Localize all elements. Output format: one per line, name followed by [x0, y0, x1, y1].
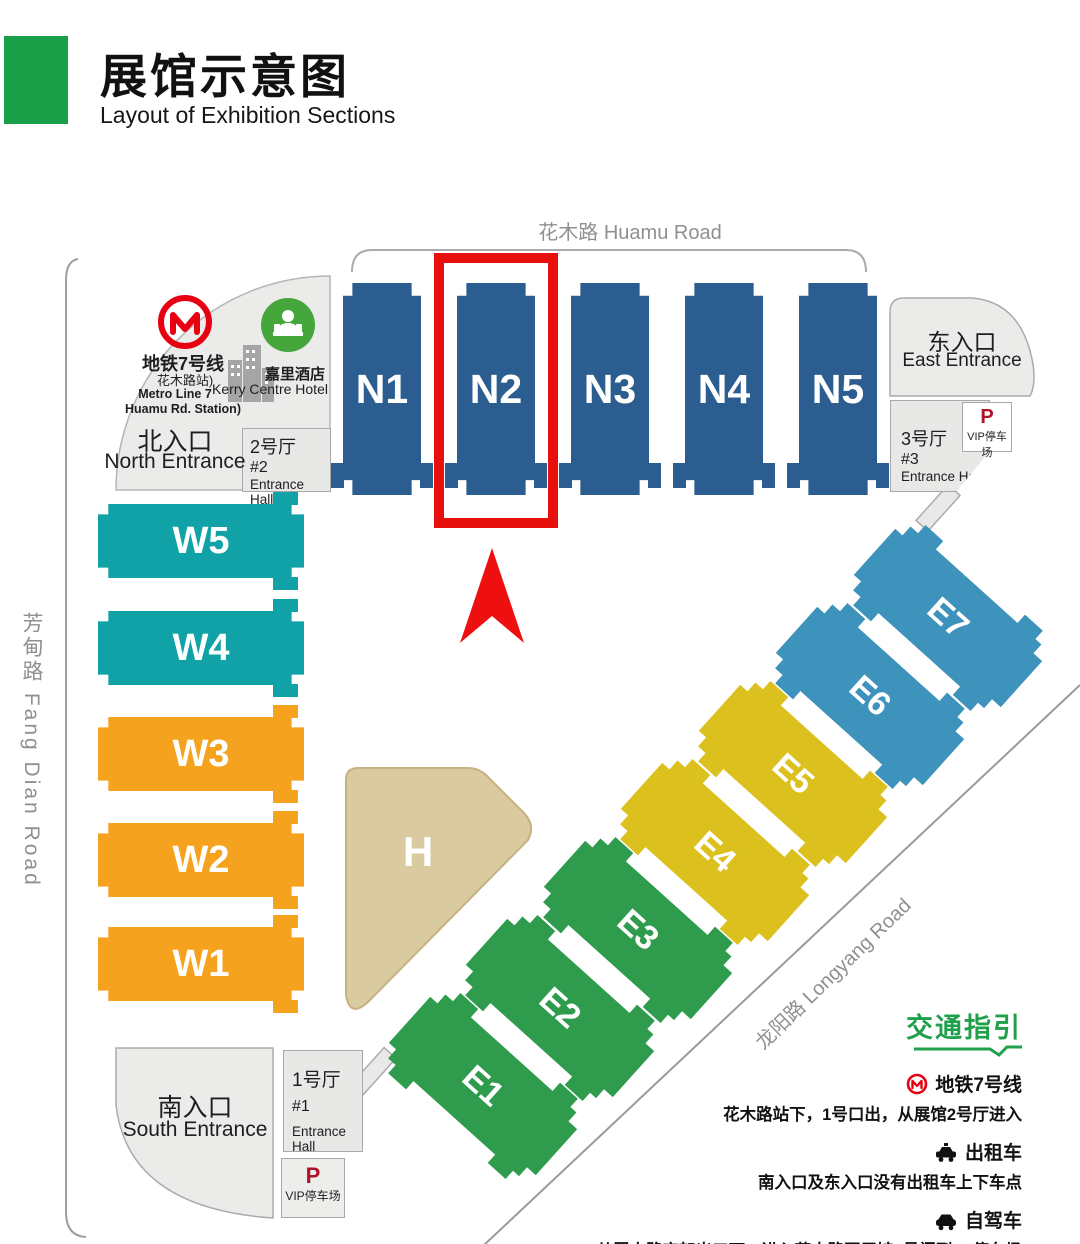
guide-row-car: 自驾车 — [592, 1206, 1022, 1233]
hall-connector — [787, 463, 800, 488]
car-icon — [934, 1209, 958, 1231]
hall-connector — [420, 463, 433, 488]
hall-label: W2 — [173, 839, 230, 882]
traffic-guide: 交通指引 地铁7号线 花木路站下，1号口出，从展馆2号厅进入 出租车 南入口及东… — [592, 1006, 1022, 1244]
hall-n4: N4 — [685, 283, 763, 495]
hall-label: E1 — [454, 1058, 511, 1115]
hotel-icon — [261, 298, 315, 352]
hall-connector — [876, 463, 889, 488]
vip-parking-label: VIP停车场 — [963, 428, 1011, 460]
hall2-en: Entrance Hall — [250, 477, 330, 507]
hall-label: E6 — [841, 668, 898, 725]
guide-row-metro: 地铁7号线 — [592, 1070, 1022, 1097]
n2-highlight-rectangle — [434, 253, 558, 528]
hall-label: W4 — [173, 627, 230, 670]
south-entrance-en-label: South Entrance — [110, 1118, 280, 1142]
hall1-en: Entrance Hall — [292, 1124, 362, 1154]
guide-car-desc: 从罗山路高架出口下，进入花木路至展馆7号门到P1停车场 — [592, 1237, 1022, 1244]
guide-title: 交通指引 — [906, 1006, 1022, 1045]
hall-label: N3 — [584, 366, 636, 413]
hall-label: E5 — [764, 746, 821, 803]
hall-label: N4 — [698, 366, 750, 413]
hall-w2: W2 — [98, 823, 304, 897]
exhibition-map: 展馆示意图 Layout of Exhibition Sections — [0, 0, 1080, 1244]
hall-w4: W4 — [98, 611, 304, 685]
hall-connector — [273, 577, 298, 590]
hotel-en-label: Kerry Centre Hotel — [200, 381, 340, 397]
map-frame-line — [66, 259, 86, 1237]
location-arrow — [460, 548, 524, 643]
hall-w1: W1 — [98, 927, 304, 1001]
hall-w5: W5 — [98, 504, 304, 578]
hall-w3: W3 — [98, 717, 304, 791]
guide-underline — [914, 1045, 1022, 1057]
east-entrance-en-label: East Entrance — [890, 350, 1034, 372]
east-vip-parking-box: P VIP停车场 — [962, 402, 1012, 452]
hall-connector — [331, 463, 344, 488]
north-entrance-en-label: North Entrance — [85, 450, 265, 474]
guide-taxi-label: 出租车 — [965, 1138, 1022, 1165]
guide-metro-desc: 花木路站下，1号口出，从展馆2号厅进入 — [592, 1101, 1022, 1125]
hall-connector — [762, 463, 775, 488]
hall-connector — [273, 790, 298, 803]
hall-label: E4 — [686, 824, 743, 881]
hall-label: W3 — [173, 733, 230, 776]
taxi-icon — [934, 1141, 958, 1163]
entrance-hall-1-box: 1号厅 #1 Entrance Hall — [283, 1050, 363, 1152]
hall-connector — [273, 684, 298, 697]
hall-connector — [273, 896, 298, 909]
hall1-num: #1 — [292, 1098, 362, 1116]
hall-h-label: H — [378, 828, 458, 876]
metro-icon — [906, 1073, 928, 1095]
guide-metro-label: 地铁7号线 — [935, 1070, 1022, 1097]
parking-icon: P — [282, 1165, 344, 1187]
guide-car-label: 自驾车 — [965, 1206, 1022, 1233]
hall-connector — [273, 1000, 298, 1013]
hall-label: W5 — [173, 520, 230, 563]
hall-label: N1 — [356, 366, 408, 413]
hall-connector — [273, 811, 298, 824]
hall-n1: N1 — [343, 283, 421, 495]
hall-label: N5 — [812, 366, 864, 413]
hall-connector — [559, 463, 572, 488]
hall-label: E3 — [609, 902, 666, 959]
hall-label: W1 — [173, 943, 230, 986]
north-boundary-line — [352, 250, 866, 272]
hall-n3: N3 — [571, 283, 649, 495]
vip-parking-label: VIP停车场 — [282, 1187, 344, 1204]
hall-connector — [273, 599, 298, 612]
hall-connector — [648, 463, 661, 488]
hall-connector — [273, 705, 298, 718]
hall-connector — [273, 915, 298, 928]
hall-n5: N5 — [799, 283, 877, 495]
parking-icon: P — [963, 406, 1011, 428]
huamu-road-label: 花木路 Huamu Road — [535, 216, 725, 245]
guide-row-taxi: 出租车 — [592, 1138, 1022, 1165]
south-vip-parking-box: P VIP停车场 — [281, 1158, 345, 1218]
hall-label: E7 — [919, 590, 976, 647]
hall-connector — [673, 463, 686, 488]
fangdian-road-label: 芳甸路 Fang Dian Road — [16, 612, 46, 972]
guide-taxi-desc: 南入口及东入口没有出租车上下车点 — [592, 1169, 1022, 1193]
hall-label: E2 — [531, 980, 588, 1037]
hall1-name: 1号厅 — [292, 1065, 362, 1092]
metro-station-en-label: Huamu Rd. Station) — [118, 402, 248, 416]
